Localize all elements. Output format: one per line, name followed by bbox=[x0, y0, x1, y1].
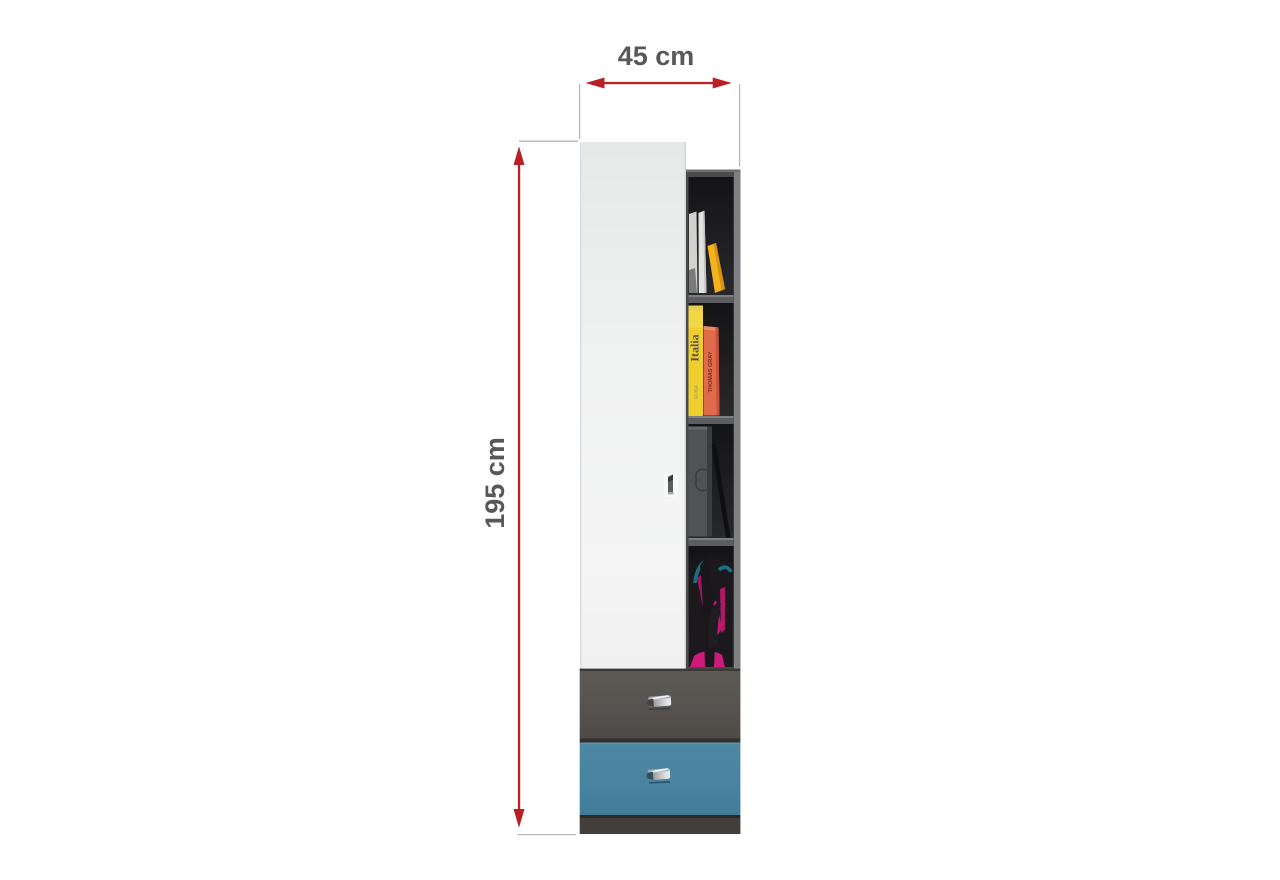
svg-text:195 cm: 195 cm bbox=[480, 437, 510, 529]
svg-text:45 cm: 45 cm bbox=[618, 41, 695, 71]
svg-text:Italia: Italia bbox=[688, 334, 702, 361]
svg-text:THOMAS GRAY: THOMAS GRAY bbox=[708, 351, 714, 392]
svg-text:GUIDA: GUIDA bbox=[694, 385, 699, 399]
